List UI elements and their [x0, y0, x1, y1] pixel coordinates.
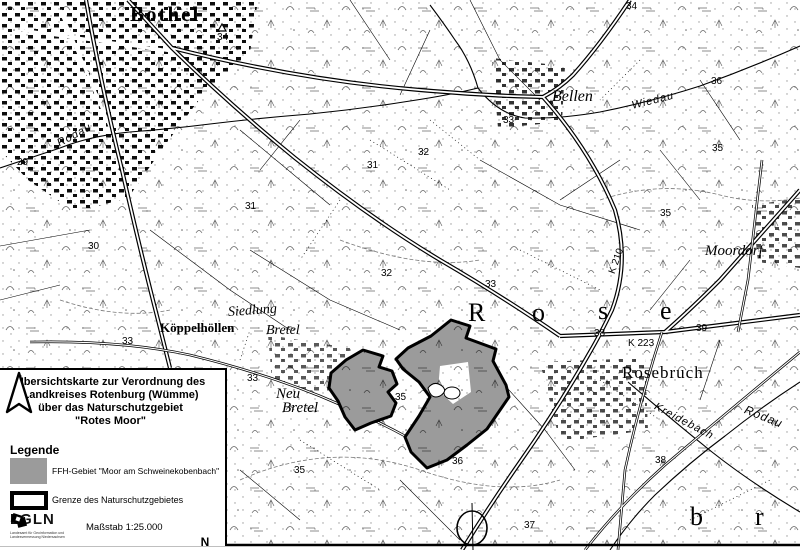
place-label-siedlung: Siedlung — [227, 302, 277, 321]
parcel-number: 34 — [626, 1, 637, 12]
info-panel: Übersichtskarte zur Verordnung des Landk… — [0, 368, 227, 546]
north-label: N — [197, 535, 213, 549]
parcel-number: 31 — [367, 160, 378, 171]
road-label-k223: K 223 — [628, 338, 654, 349]
parcel-number: 35 — [660, 208, 671, 219]
parcel-number: 32 — [418, 147, 429, 158]
place-label-bothel: Bothel — [130, 2, 200, 27]
parcel-number: 33 — [122, 336, 133, 347]
parcel-number: 33 — [247, 373, 258, 384]
parcel-number: 35 — [395, 392, 406, 403]
legend-label-nsg-boundary: Grenze des Naturschutzgebietes — [52, 495, 183, 505]
legend-label-ffh: FFH-Gebiet "Moor am Schweinekobenbach" — [52, 466, 219, 476]
parcel-number: 33 — [503, 115, 514, 126]
parcel-number: 35 — [712, 143, 723, 154]
scale-label: Maßstab 1:25.000 — [86, 522, 163, 533]
parcel-number: 34 — [217, 32, 228, 43]
area-letter-o: o — [532, 298, 545, 328]
place-label-bretel: Bretel — [266, 323, 300, 339]
parcel-number: 39 — [696, 323, 707, 334]
area-letter-e: e — [660, 296, 672, 326]
parcel-number: 38 — [655, 455, 666, 466]
lgln-logo-icon — [10, 511, 28, 529]
parcel-number: 36 — [452, 456, 463, 467]
lgln-logo-subtext: Landesamt für Geoinformation und Landesv… — [10, 531, 88, 539]
area-letter-r: R — [468, 298, 485, 328]
title-line-4: "Rotes Moor" — [0, 415, 221, 428]
legend-swatch-ffh — [10, 458, 47, 484]
area-letter-s: s — [598, 296, 608, 326]
parcel-number: 32 — [381, 268, 392, 279]
parcel-number: 29 — [17, 157, 28, 168]
map-page: Bothel Bellen Wiedau Moordorf Rosebruch … — [0, 0, 800, 550]
place-label-koeppelhoellen: Köppelhöllen — [160, 320, 234, 336]
area-letter-b: b — [690, 502, 703, 532]
lgln-logo: LGLN — [10, 511, 55, 528]
parcel-number: 37 — [524, 520, 535, 531]
place-label-neu-bretel: Bretel — [282, 400, 318, 417]
place-label-bellen: Bellen — [552, 88, 593, 106]
parcel-number: 38 — [594, 328, 605, 339]
place-label-rosebruch: Rosebruch — [622, 363, 704, 383]
place-label-moordorf: Moordorf — [705, 243, 763, 260]
parcel-number: 31 — [245, 201, 256, 212]
parcel-number: 30 — [88, 241, 99, 252]
parcel-number: 33 — [485, 279, 496, 290]
legend-swatch-nsg-boundary — [10, 491, 48, 510]
legend-heading: Legende — [10, 443, 59, 457]
area-letter-r2: r — [755, 502, 764, 532]
parcel-number: 35 — [294, 465, 305, 476]
north-arrow-icon — [0, 370, 38, 416]
parcel-number: 36 — [711, 76, 722, 87]
